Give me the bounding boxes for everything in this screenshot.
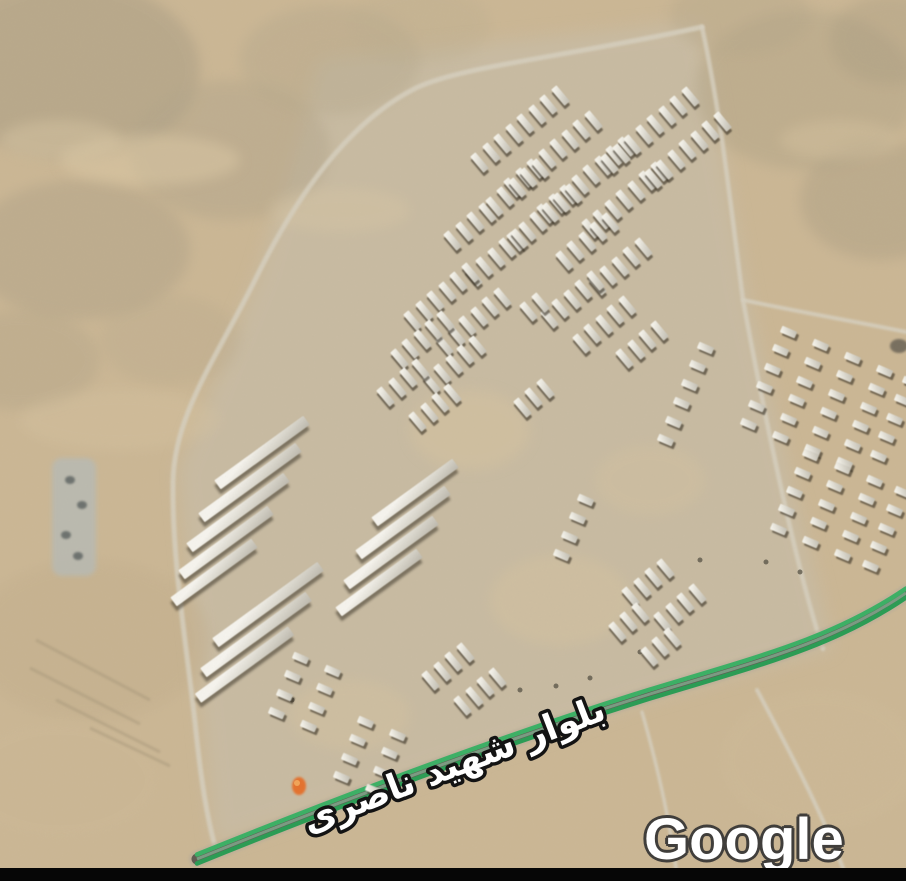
building	[802, 535, 819, 548]
building	[388, 729, 405, 742]
building	[834, 548, 851, 561]
building	[584, 110, 603, 131]
building	[778, 504, 795, 517]
building	[690, 130, 709, 151]
building	[373, 765, 390, 778]
building	[878, 522, 895, 535]
building	[667, 149, 686, 170]
building	[475, 257, 494, 278]
building	[663, 627, 682, 648]
building	[860, 401, 877, 414]
letterbox-bar	[0, 868, 906, 881]
building	[635, 124, 654, 145]
building	[678, 140, 697, 161]
building	[627, 180, 646, 201]
building	[415, 300, 434, 321]
building	[619, 611, 638, 632]
building	[862, 559, 879, 572]
building	[681, 86, 700, 107]
building	[390, 348, 409, 369]
building	[445, 354, 464, 375]
building	[595, 314, 614, 335]
building	[443, 231, 462, 252]
building	[844, 438, 861, 451]
building	[536, 378, 555, 399]
building	[348, 734, 365, 747]
building	[850, 511, 867, 524]
satellite-map-canvas[interactable]: بلوار شهید ناصری Google	[0, 0, 906, 881]
building	[650, 320, 669, 341]
building	[493, 133, 512, 154]
building	[455, 221, 474, 242]
building	[644, 567, 663, 588]
building	[870, 541, 887, 554]
building	[701, 120, 720, 141]
building	[468, 335, 487, 356]
building	[524, 387, 543, 408]
building	[764, 362, 781, 375]
building	[411, 358, 430, 379]
building	[688, 583, 707, 604]
building	[870, 449, 887, 462]
building	[857, 493, 874, 506]
building	[291, 652, 308, 665]
building	[449, 271, 468, 292]
building	[461, 262, 480, 283]
building	[315, 683, 332, 696]
building	[376, 387, 395, 408]
building	[843, 352, 860, 365]
building	[456, 642, 475, 663]
building	[665, 415, 682, 428]
building	[696, 342, 713, 355]
building	[531, 292, 550, 313]
building	[842, 530, 859, 543]
building	[852, 420, 869, 433]
building	[456, 344, 475, 365]
building	[333, 771, 350, 784]
building	[756, 381, 773, 394]
building	[713, 111, 732, 132]
building	[551, 85, 570, 106]
building	[780, 412, 797, 425]
building	[796, 375, 813, 388]
building	[424, 319, 443, 340]
building	[268, 707, 285, 720]
building	[901, 376, 906, 389]
building	[615, 349, 634, 370]
building	[549, 139, 568, 160]
building	[779, 326, 796, 339]
building	[772, 431, 789, 444]
building	[433, 661, 452, 682]
building	[470, 152, 489, 173]
building	[458, 316, 477, 337]
building	[618, 295, 637, 316]
building	[519, 301, 538, 322]
building	[555, 250, 574, 271]
building	[786, 485, 803, 498]
building	[676, 592, 695, 613]
building	[470, 306, 489, 327]
building	[867, 383, 884, 396]
building	[627, 339, 646, 360]
building	[656, 558, 675, 579]
building	[634, 237, 653, 258]
building	[770, 522, 787, 535]
building	[658, 105, 677, 126]
building	[283, 670, 300, 683]
building	[341, 752, 358, 765]
building	[688, 360, 705, 373]
building	[465, 686, 484, 707]
building	[399, 367, 418, 388]
building	[803, 357, 820, 370]
building	[487, 247, 506, 268]
building	[513, 397, 532, 418]
building	[825, 480, 842, 493]
building	[622, 246, 641, 267]
building	[788, 394, 805, 407]
building	[812, 425, 829, 438]
building	[611, 256, 630, 277]
building	[673, 397, 690, 410]
building	[551, 299, 570, 320]
building	[443, 383, 462, 404]
building	[476, 676, 495, 697]
building	[793, 467, 810, 480]
building	[771, 344, 788, 357]
building	[488, 667, 507, 688]
building	[323, 665, 340, 678]
building	[681, 378, 698, 391]
building	[878, 431, 895, 444]
building	[438, 281, 457, 302]
building	[657, 434, 674, 447]
building	[413, 329, 432, 350]
building	[651, 636, 670, 657]
building	[380, 747, 397, 760]
building	[308, 701, 325, 714]
building	[631, 602, 650, 623]
building	[608, 621, 627, 642]
building	[516, 114, 535, 135]
building	[408, 412, 427, 433]
building	[401, 339, 420, 360]
building	[300, 720, 317, 733]
building	[572, 333, 591, 354]
building	[563, 289, 582, 310]
buildings-layer	[0, 0, 906, 881]
building	[893, 486, 906, 499]
building	[606, 304, 625, 325]
building	[669, 95, 688, 116]
building	[638, 329, 657, 350]
building	[582, 165, 601, 186]
building	[493, 287, 512, 308]
building	[403, 310, 422, 331]
building	[583, 324, 602, 345]
building	[466, 211, 485, 232]
building	[646, 115, 665, 136]
building	[421, 671, 440, 692]
building	[811, 339, 828, 352]
building	[828, 388, 845, 401]
building	[885, 504, 902, 517]
building	[865, 475, 882, 488]
building	[388, 377, 407, 398]
building	[740, 418, 757, 431]
building	[276, 688, 293, 701]
building	[561, 129, 580, 150]
building	[420, 402, 439, 423]
building	[576, 494, 593, 507]
building	[633, 577, 652, 598]
building	[640, 646, 659, 667]
google-watermark: Google	[644, 806, 844, 873]
building	[810, 517, 827, 530]
building	[568, 512, 585, 525]
building	[615, 190, 634, 211]
building	[875, 365, 892, 378]
building	[426, 291, 445, 312]
building	[528, 104, 547, 125]
building	[365, 784, 382, 797]
building	[748, 399, 765, 412]
building	[553, 549, 570, 562]
building	[561, 530, 578, 543]
building	[356, 716, 373, 729]
building	[453, 696, 472, 717]
building	[665, 602, 684, 623]
building	[482, 143, 501, 164]
building	[539, 94, 558, 115]
building	[818, 498, 835, 511]
building	[566, 241, 585, 262]
building	[835, 370, 852, 383]
building	[481, 296, 500, 317]
building	[444, 651, 463, 672]
building	[431, 392, 450, 413]
building	[505, 123, 524, 144]
building	[433, 364, 452, 385]
building	[436, 310, 455, 331]
building	[820, 407, 837, 420]
building	[893, 394, 906, 407]
building	[886, 412, 903, 425]
building	[572, 119, 591, 140]
